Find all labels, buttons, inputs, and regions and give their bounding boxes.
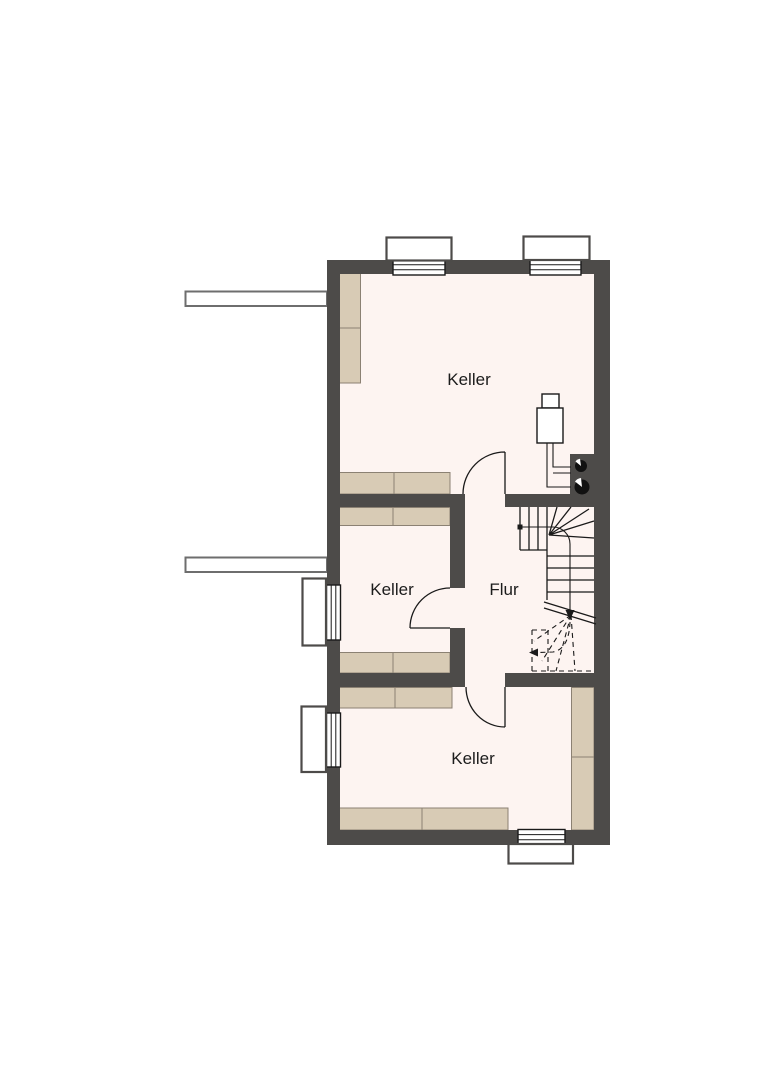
exterior-strip-top (186, 292, 328, 307)
cabinet (340, 274, 361, 329)
window (393, 260, 445, 276)
interior-wall (338, 673, 465, 687)
cabinet (340, 328, 361, 383)
cabinet (393, 653, 450, 674)
boiler-top (542, 394, 559, 408)
window (327, 585, 341, 640)
cabinet (422, 808, 508, 830)
cabinet (395, 688, 452, 709)
light-well (303, 579, 327, 646)
cabinet (572, 757, 595, 830)
window (518, 830, 565, 846)
interior-wall (450, 628, 465, 673)
cabinet (340, 653, 394, 674)
room-label-keller-bottom: Keller (451, 749, 494, 769)
cabinet (340, 473, 395, 495)
window (530, 260, 581, 276)
interior-wall (505, 673, 594, 687)
exterior-wall-bottom (327, 830, 610, 845)
cabinet (340, 688, 396, 709)
exterior-wall-right (594, 260, 610, 845)
light-well (302, 707, 327, 773)
floorplan-drawing (0, 0, 764, 1080)
room-label-keller-middle: Keller (370, 580, 413, 600)
cabinet (393, 508, 450, 526)
cabinet (340, 808, 423, 830)
light-well (387, 238, 452, 261)
interior-wall (338, 494, 463, 507)
floor-area (340, 274, 594, 830)
floorplan-canvas: Keller Keller Flur Keller (0, 0, 764, 1080)
boiler-body (537, 408, 563, 443)
room-label-keller-top: Keller (447, 370, 490, 390)
exterior-strip-group (186, 292, 328, 573)
exterior-strip-middle (186, 558, 328, 573)
window (327, 713, 341, 767)
light-well (509, 844, 574, 864)
cabinet (572, 688, 595, 758)
interior-wall (505, 494, 594, 507)
walkline-start-dot (518, 525, 523, 530)
room-label-flur: Flur (489, 580, 518, 600)
interior-wall (450, 494, 465, 588)
cabinet (394, 473, 450, 495)
light-well (524, 237, 590, 261)
cabinet (340, 508, 394, 526)
